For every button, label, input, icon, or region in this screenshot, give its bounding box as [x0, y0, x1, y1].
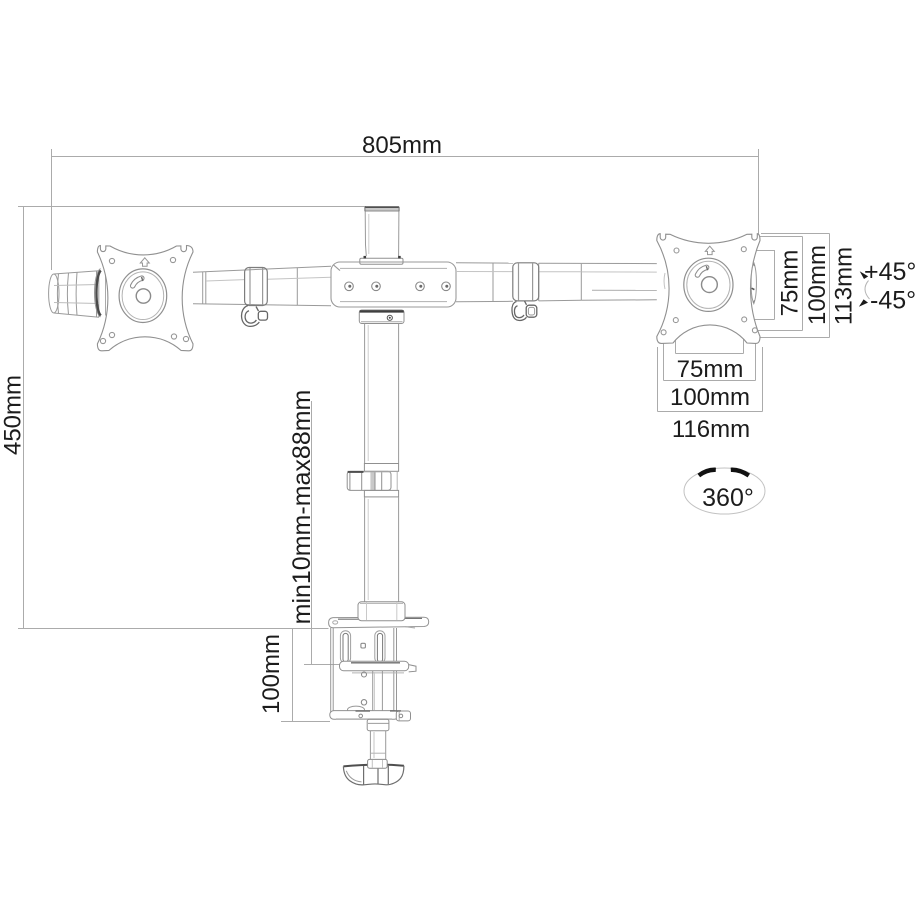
- svg-text:min10mm-max88mm: min10mm-max88mm: [288, 390, 316, 625]
- svg-text:805mm: 805mm: [362, 132, 442, 159]
- svg-text:450mm: 450mm: [0, 375, 27, 455]
- svg-text:100mm: 100mm: [670, 384, 750, 411]
- svg-text:100mm: 100mm: [804, 245, 831, 325]
- svg-text:360°: 360°: [702, 484, 754, 512]
- svg-text:116mm: 116mm: [672, 416, 750, 443]
- svg-text:75mm: 75mm: [777, 250, 804, 317]
- svg-text:113mm: 113mm: [831, 247, 858, 325]
- svg-text:+45°: +45°: [864, 258, 916, 286]
- svg-text:100mm: 100mm: [258, 634, 285, 714]
- svg-text:-45°: -45°: [870, 287, 916, 315]
- svg-text:75mm: 75mm: [677, 356, 744, 383]
